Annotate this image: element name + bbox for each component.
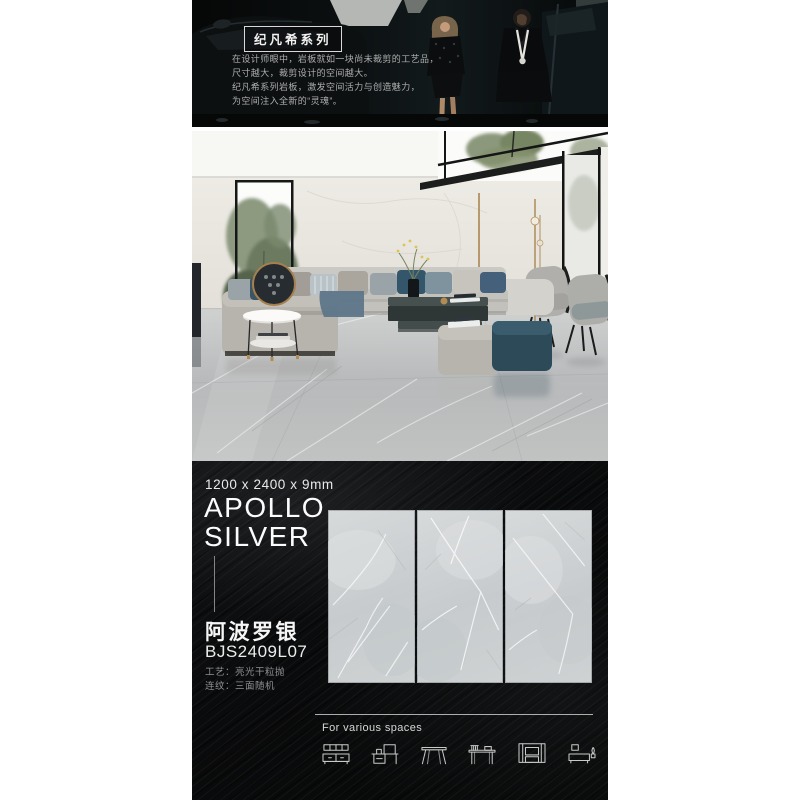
vertical-divider [214, 556, 215, 612]
tile-panels [328, 510, 592, 683]
horizontal-divider [315, 714, 593, 715]
dresser-desk-icon [369, 741, 401, 767]
banner-description-line: 纪凡希系列岩板，激发空间活力与创造魅力， [232, 80, 439, 94]
space-icons-row [320, 741, 598, 767]
living-room-illustration [192, 131, 608, 461]
series-title-box: 纪凡希系列 [244, 26, 342, 52]
sideboard-icon [320, 741, 352, 767]
tile-panel-1 [328, 510, 415, 683]
spec-pattern: 连纹：三面随机 [205, 680, 285, 694]
tv-cabinet-icon [566, 741, 598, 767]
banner-description: 在设计师眼中，岩板就如一块尚未裁剪的工艺品， 尺寸越大，裁剪设计的空间越大。 纪… [232, 52, 439, 108]
marble-veins [417, 510, 504, 683]
series-title: 纪凡希系列 [254, 33, 332, 47]
poster-content: 纪凡希系列 在设计师眼中，岩板就如一块尚未裁剪的工艺品， 尺寸越大，裁剪设计的空… [192, 0, 608, 800]
media-wall-icon [515, 741, 549, 767]
product-info-section: 1200 x 2400 x 9mm APOLLO SILVER 阿波罗银 BJS… [192, 461, 608, 800]
product-sku: BJS2409L07 [205, 642, 307, 662]
spaces-caption: For various spaces [322, 722, 422, 734]
product-name-line2: SILVER [204, 522, 325, 551]
product-specs: 工艺：亮光干粒抛 连纹：三面随机 [205, 666, 285, 693]
product-dimensions: 1200 x 2400 x 9mm [205, 477, 334, 492]
dining-table-icon [418, 741, 450, 767]
tile-panel-3 [505, 510, 592, 683]
banner-description-line: 尺寸越大，裁剪设计的空间越大。 [232, 66, 439, 80]
banner-section: 纪凡希系列 在设计师眼中，岩板就如一块尚未裁剪的工艺品， 尺寸越大，裁剪设计的空… [192, 0, 608, 127]
living-room-photo [192, 131, 608, 461]
banner-description-line: 为空间注入全新的“灵魂”。 [232, 94, 439, 108]
product-name-line1: APOLLO [204, 493, 325, 522]
product-name-en: APOLLO SILVER [204, 493, 325, 551]
product-poster: 纪凡希系列 在设计师眼中，岩板就如一块尚未裁剪的工艺品， 尺寸越大，裁剪设计的空… [0, 0, 800, 800]
banner-description-line: 在设计师眼中，岩板就如一块尚未裁剪的工艺品， [232, 52, 439, 66]
writing-desk-icon [466, 741, 498, 767]
tile-panel-2 [417, 510, 504, 683]
marble-veins [328, 510, 415, 683]
spec-finish: 工艺：亮光干粒抛 [205, 666, 285, 680]
marble-veins [505, 510, 592, 683]
